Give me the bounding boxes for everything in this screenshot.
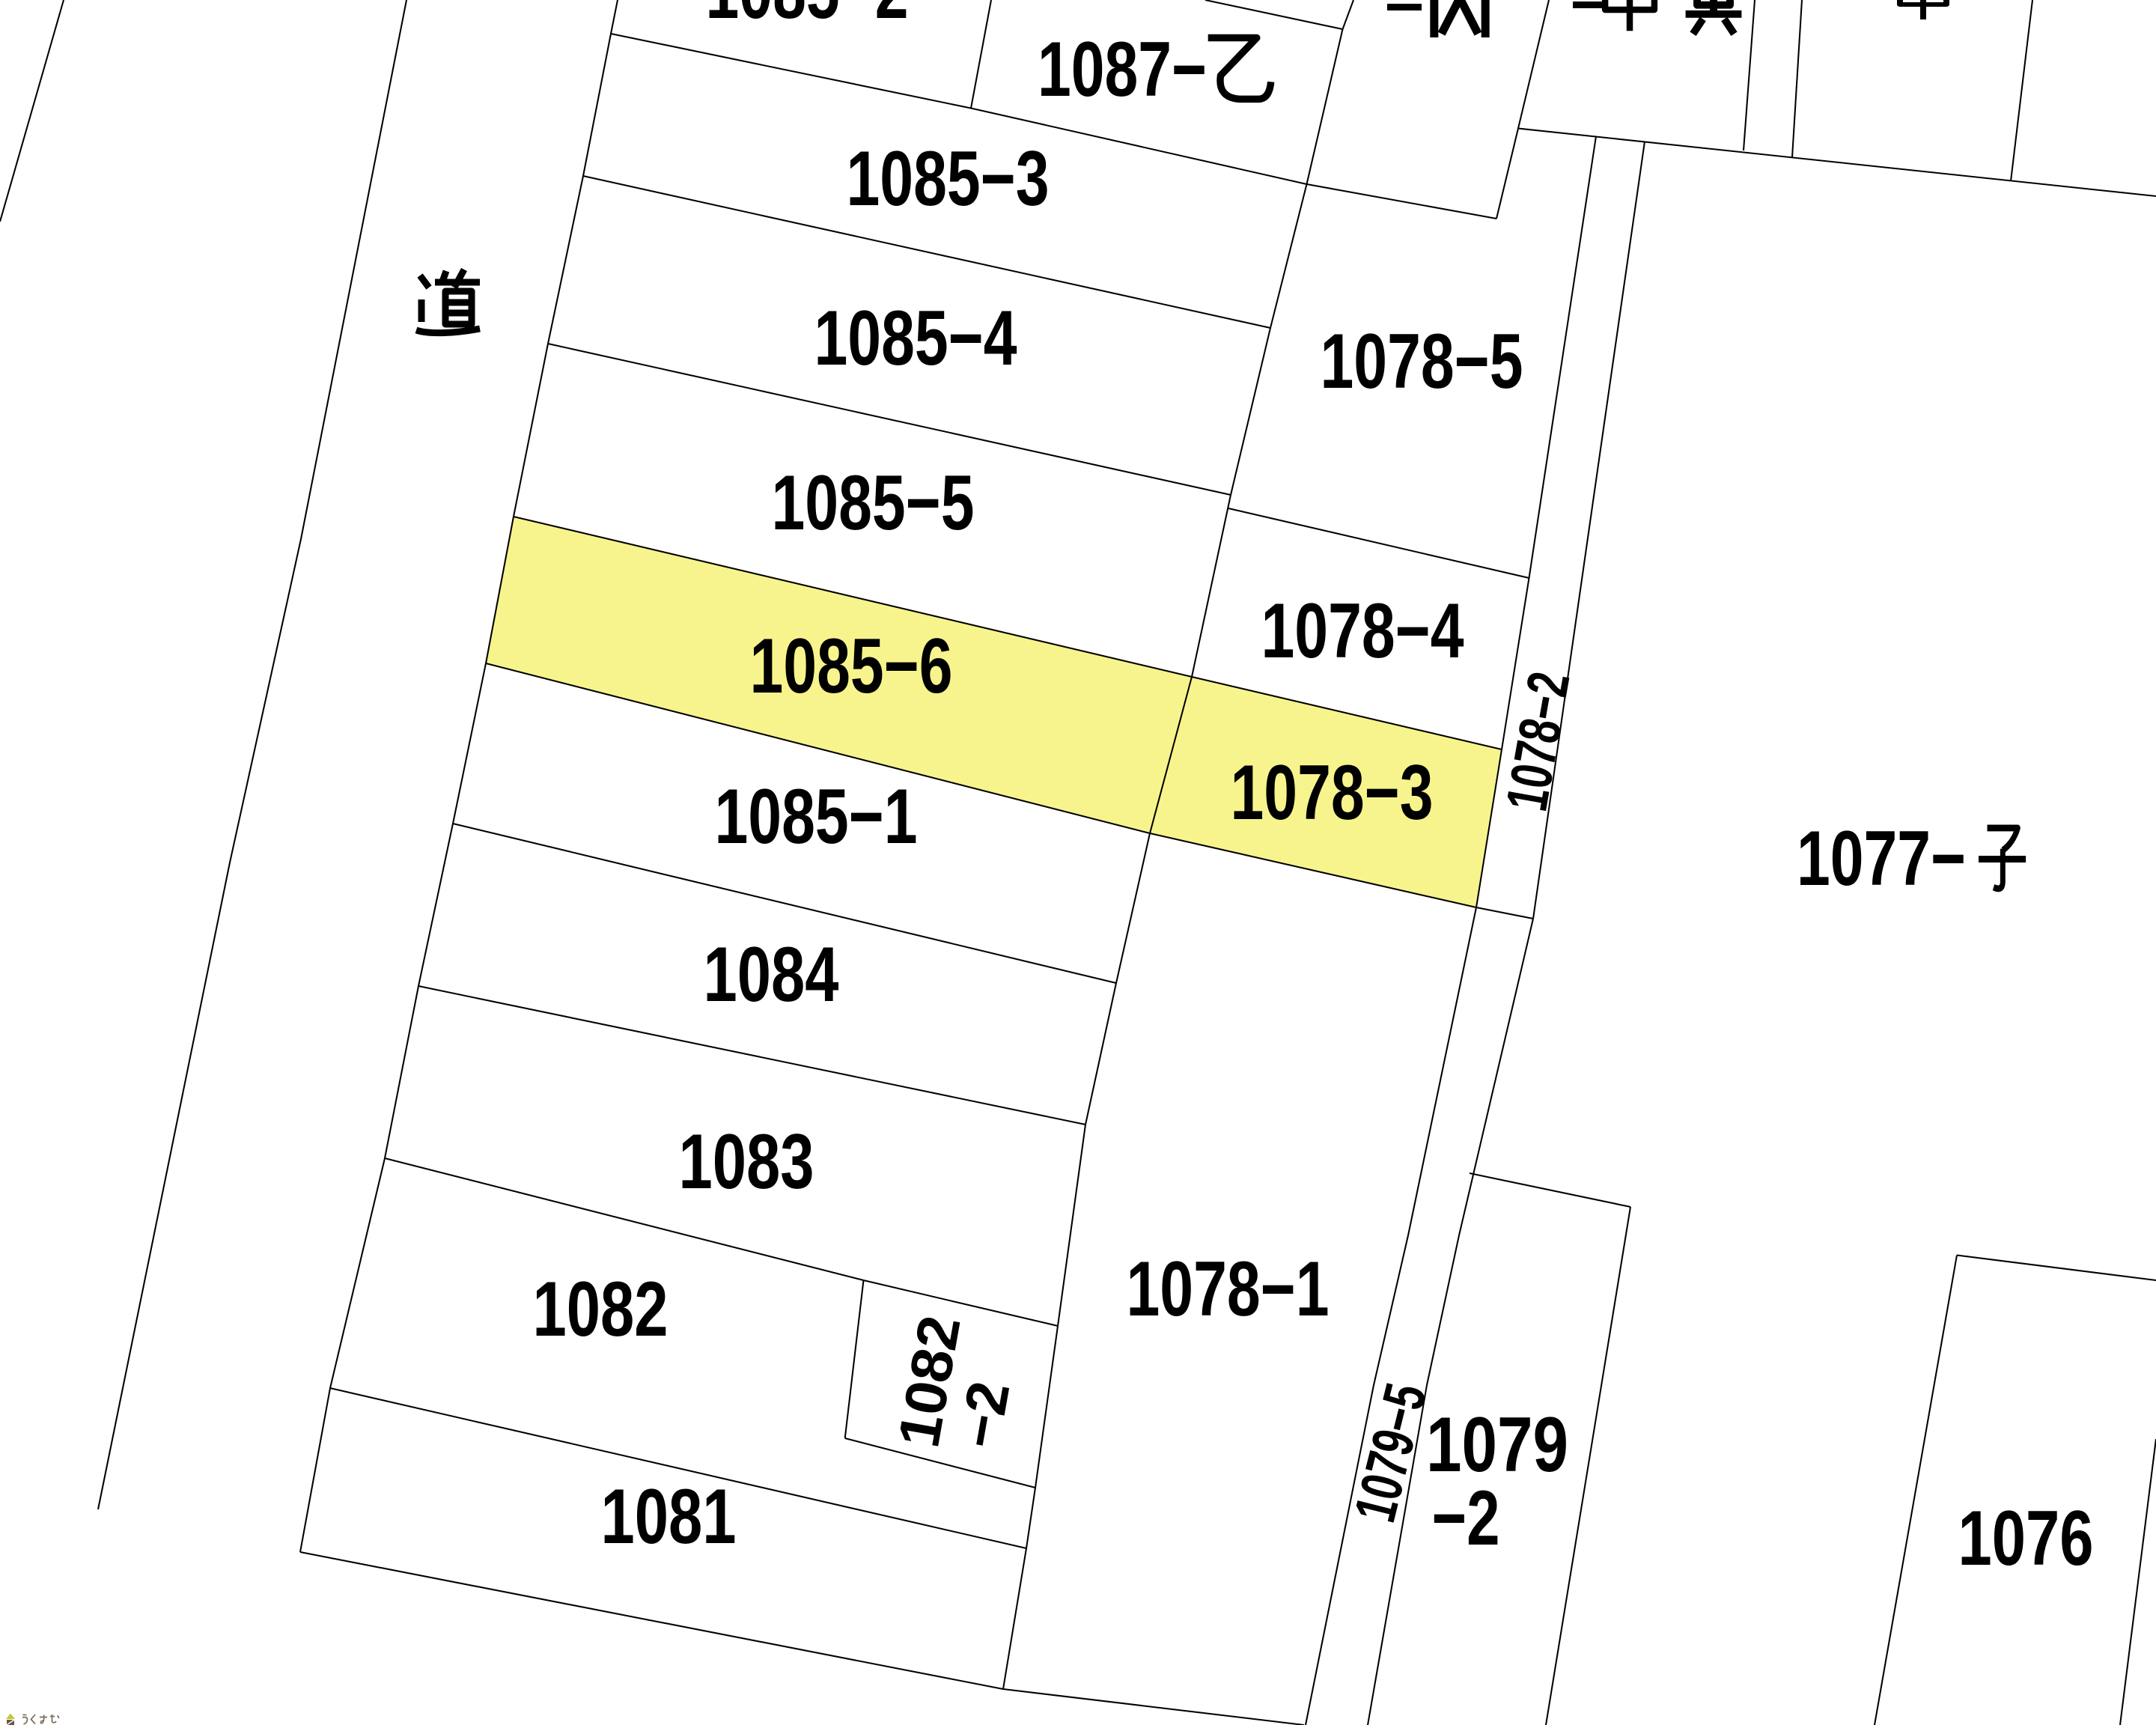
svg-text:1076: 1076 — [1958, 1495, 2094, 1582]
svg-text:1078−1: 1078−1 — [1127, 1246, 1330, 1333]
svg-text:1078−3: 1078−3 — [1231, 749, 1434, 836]
svg-text:1085−3: 1085−3 — [847, 136, 1050, 222]
svg-text:1085−5: 1085−5 — [772, 460, 975, 547]
svg-text:1078−5: 1078−5 — [1321, 318, 1523, 405]
svg-text:−2: −2 — [1432, 1475, 1500, 1562]
svg-text:1082: 1082 — [533, 1266, 669, 1353]
svg-text:1081: 1081 — [601, 1473, 737, 1560]
svg-text:1083: 1083 — [679, 1119, 814, 1205]
svg-text:1085−4: 1085−4 — [814, 295, 1017, 382]
svg-text:1085−2: 1085−2 — [706, 0, 909, 35]
svg-text:−2: −2 — [945, 1377, 1022, 1453]
svg-text:1077−: 1077− — [1797, 815, 1966, 902]
svg-text:1087−: 1087− — [1038, 26, 1207, 113]
svg-text:1078−4: 1078−4 — [1261, 588, 1464, 675]
svg-text:1085−6: 1085−6 — [750, 623, 953, 710]
svg-text:1084: 1084 — [704, 931, 839, 1018]
svg-text:1085−1: 1085−1 — [715, 773, 918, 860]
